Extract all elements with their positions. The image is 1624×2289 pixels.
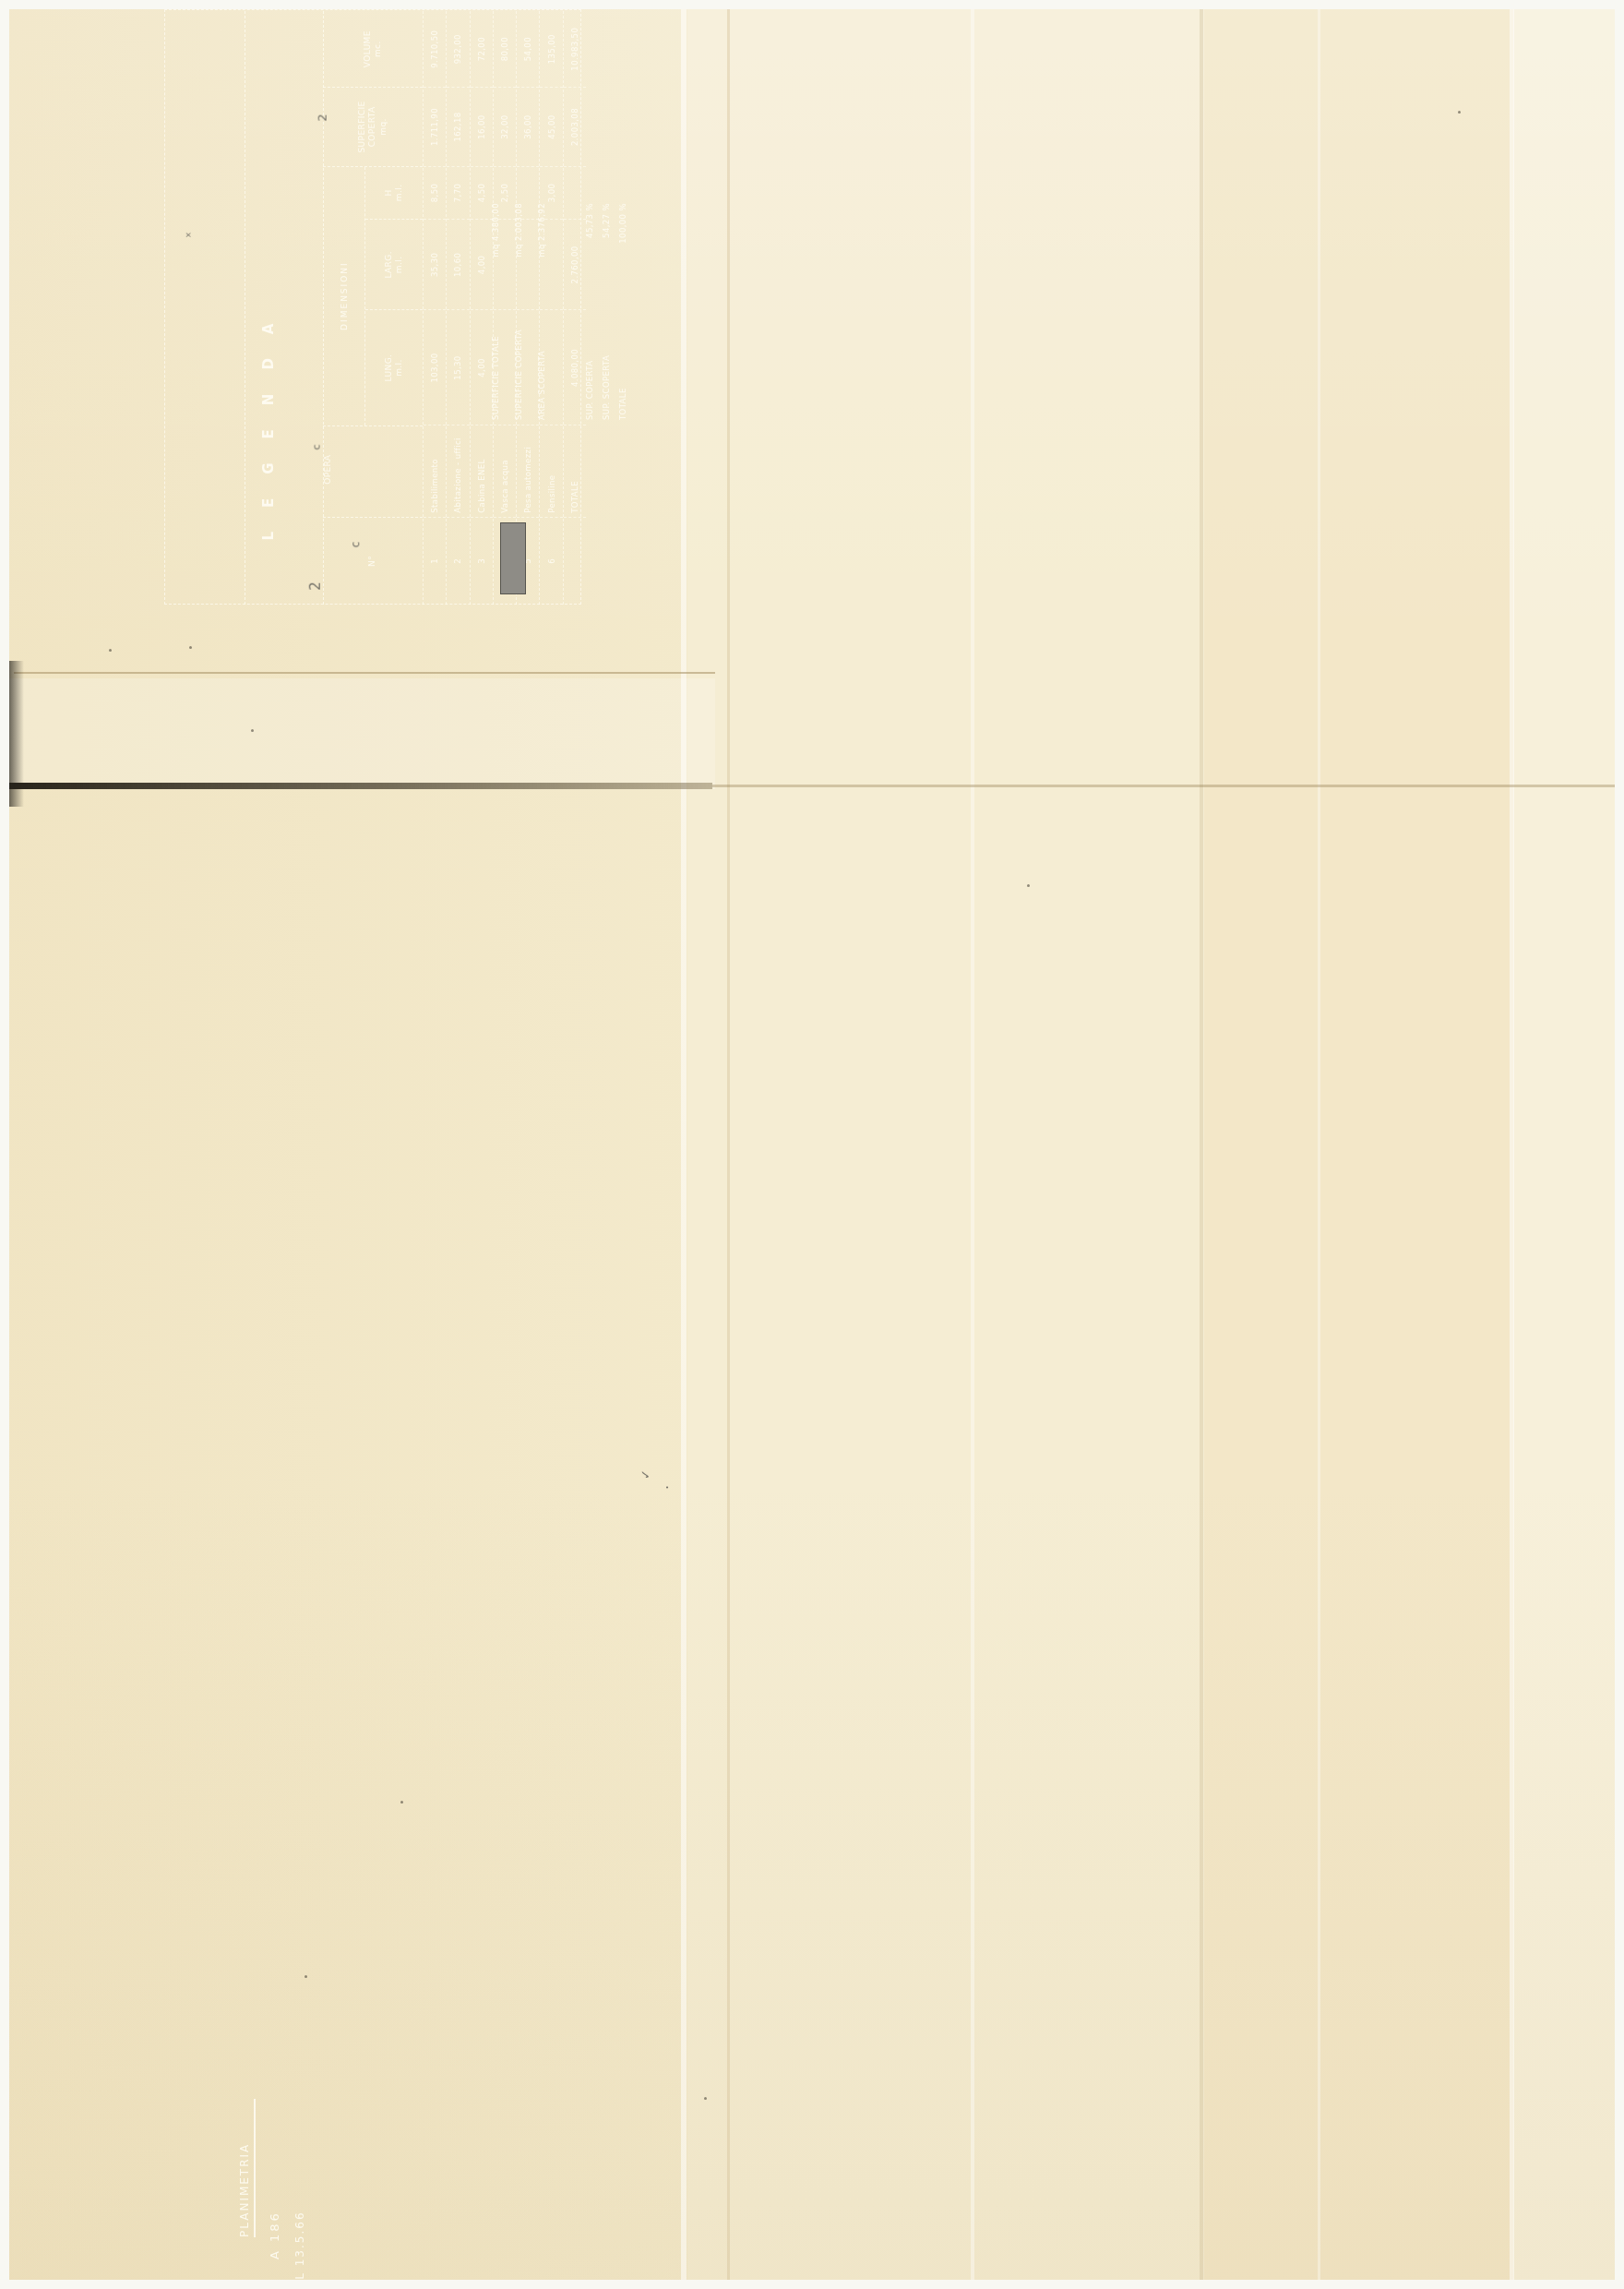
table-row: 1Stabilimento103,0035,308,501.711,909.71… xyxy=(423,11,446,605)
table-cell-larg: 35,30 xyxy=(424,220,446,310)
lung-label: LUNG. xyxy=(384,354,394,382)
table-cell-sup: 16,00 xyxy=(471,88,493,166)
percentage-note-value: 45,73 % xyxy=(585,203,594,238)
paper-speck xyxy=(228,4,231,6)
legend-fill-swatch xyxy=(500,522,526,594)
paper-speck xyxy=(1458,111,1461,114)
table-cell-vol: 80,00 xyxy=(494,11,516,88)
h-label: H xyxy=(384,189,394,196)
paper-speck xyxy=(189,646,192,649)
table-cell-vol: 135,00 xyxy=(540,11,562,88)
vertical-fold-crease xyxy=(727,0,730,2289)
summary-note: SUPERFICIE COPERTAmq 2.003,08 xyxy=(514,203,523,420)
table-cell-sup: 36,00 xyxy=(517,88,539,166)
table-cell-vol: 9.710,50 xyxy=(424,11,446,88)
pencil-annotation: c xyxy=(349,542,362,548)
summary-note: AREA SCOPERTAmq 2.376,92 xyxy=(537,203,546,420)
table-row: 2Abitazione - uffici15,3010,607,70162,18… xyxy=(446,11,469,605)
column-header-n-label: N° xyxy=(367,556,377,567)
table-cell-opera: TOTALE xyxy=(564,426,586,518)
fold-light-band xyxy=(0,678,715,789)
table-cell-vol: 932,00 xyxy=(447,11,469,88)
title-block-line1: PLANIMETRIA xyxy=(238,2099,256,2237)
table-cell-vol: 54,00 xyxy=(517,11,539,88)
percentage-note-value: 100,00 % xyxy=(618,203,627,244)
paper-speck xyxy=(109,649,112,652)
dimensioni-subcolumns: LUNG. m.l. LARG. m.l. H m.l. xyxy=(365,167,423,425)
vertical-fold-crease xyxy=(1510,0,1514,2289)
table-cell-sup: 162,18 xyxy=(447,88,469,166)
vertical-fold-crease xyxy=(1200,0,1203,2289)
paper-speck xyxy=(1027,884,1030,887)
paper-tone-middle xyxy=(687,0,1204,2289)
table-cell-opera: Cabina ENEL xyxy=(471,426,493,518)
table-cell-lung: 4.080,00 xyxy=(564,310,586,425)
table-cell-larg: 4,00 xyxy=(471,220,493,310)
percentage-note-value: 54,27 % xyxy=(602,203,611,238)
column-header-superficie: SUPERFICIE COPERTA mq. xyxy=(323,88,423,166)
table-cell-h: 4,50 xyxy=(471,167,493,221)
paper-speck xyxy=(304,1975,307,1978)
column-header-lung: LUNG. m.l. xyxy=(365,310,423,425)
horizontal-crease-shadow xyxy=(0,783,712,789)
legend-table-rows: 1Stabilimento103,0035,308,501.711,909.71… xyxy=(423,11,586,605)
table-row: 3Cabina ENEL4,004,004,5016,0072,00 xyxy=(470,11,493,605)
pencil-annotation: 2 xyxy=(316,114,329,121)
table-cell-vol: 72,00 xyxy=(471,11,493,88)
table-cell-n xyxy=(564,518,586,605)
paper-speck xyxy=(704,2097,707,2100)
column-header-opera-label: OPERA xyxy=(323,455,333,485)
column-header-volume: VOLUME mc. xyxy=(323,11,423,88)
column-header-larg: LARG. m.l. xyxy=(365,220,423,310)
volume-label: VOLUME xyxy=(363,30,373,67)
larg-label: LARG. xyxy=(384,251,394,278)
table-cell-n: 6 xyxy=(540,518,562,605)
title-block-line3: AL 13.5.66 xyxy=(293,2174,306,2289)
vertical-fold-crease xyxy=(681,0,687,2289)
volume-unit: mc. xyxy=(373,41,383,57)
column-header-h: H m.l. xyxy=(365,167,423,221)
pencil-annotation: ✓ xyxy=(639,1469,652,1480)
table-cell-opera: Pesa automezzi xyxy=(517,426,539,518)
larg-unit: m.l. xyxy=(394,257,404,274)
summary-note-value: mq 4.380,00 xyxy=(491,203,500,258)
pencil-annotation: · xyxy=(659,1485,676,1490)
summary-note-label: SUPERFICIE COPERTA xyxy=(514,330,523,420)
vertical-fold-crease xyxy=(1318,0,1320,2289)
table-cell-lung: 15,30 xyxy=(447,310,469,425)
horizontal-crease-shadow-right xyxy=(712,785,1624,787)
summary-note-label: SUPERFICIE TOTALE xyxy=(491,336,500,420)
table-cell-h xyxy=(564,167,586,221)
table-row: TOTALE4.080,002.760,002.003,0810.983,50 xyxy=(563,11,586,605)
pencil-annotation: c xyxy=(311,444,323,449)
lung-unit: m.l. xyxy=(394,359,404,377)
summary-note-value: mq 2.003,08 xyxy=(514,203,523,258)
percentage-note-label: TOTALE xyxy=(618,388,627,420)
column-group-dimensioni-label: DIMENSIONI xyxy=(323,167,365,425)
percentage-note-label: SUP. SCOPERTA xyxy=(602,355,611,420)
table-cell-lung: 103,00 xyxy=(424,310,446,425)
percentage-note: TOTALE100,00 % xyxy=(618,203,627,420)
table-cell-opera: Stabilimento xyxy=(424,426,446,518)
vertical-fold-crease xyxy=(971,0,974,2289)
scanned-drawing-sheet: LEGENDA N° OPERA DIMENSIONI LUNG. m.l. L… xyxy=(0,0,1624,2289)
legend-header-row: N° OPERA DIMENSIONI LUNG. m.l. LARG. m.l… xyxy=(323,11,423,605)
table-cell-sup: 45,00 xyxy=(540,88,562,166)
table-cell-larg: 10,60 xyxy=(447,220,469,310)
summary-note-value: mq 2.376,92 xyxy=(537,203,546,258)
pencil-annotation: × xyxy=(185,232,193,238)
table-cell-opera: Abitazione - uffici xyxy=(447,426,469,518)
table-cell-sup: 1.711,90 xyxy=(424,88,446,166)
summary-note: SUPERFICIE TOTALEmq 4.380,00 xyxy=(491,203,500,420)
superficie-label: SUPERFICIE COPERTA xyxy=(357,94,378,159)
percentage-note-label: SUP. COPERTA xyxy=(585,361,594,420)
table-cell-n: 1 xyxy=(424,518,446,605)
table-rule xyxy=(245,11,245,605)
paper-speck xyxy=(400,1801,403,1804)
percentage-note: SUP. COPERTA45,73 % xyxy=(585,203,594,420)
legend-table: LEGENDA N° OPERA DIMENSIONI LUNG. m.l. L… xyxy=(157,9,655,618)
paper-tone-right xyxy=(1204,0,1513,2289)
pencil-annotation: 2 xyxy=(307,581,324,591)
table-cell-sup: 2.003,08 xyxy=(564,88,586,166)
column-header-opera: OPERA xyxy=(323,426,423,518)
table-cell-opera: Vasca acqua xyxy=(494,426,516,518)
percentage-note: SUP. SCOPERTA54,27 % xyxy=(602,203,611,420)
table-cell-n: 2 xyxy=(447,518,469,605)
scan-shadow-wedge xyxy=(0,661,24,807)
table-cell-h: 8,50 xyxy=(424,167,446,221)
title-block-line2: A 186 xyxy=(268,2158,281,2259)
paper-tone-right-edge xyxy=(1513,0,1624,2289)
h-unit: m.l. xyxy=(394,185,404,202)
paper-speck xyxy=(251,729,254,732)
table-cell-h: 7,70 xyxy=(447,167,469,221)
superficie-unit: mq. xyxy=(378,118,388,136)
column-header-n: N° xyxy=(323,518,423,605)
table-cell-larg: 2.760,00 xyxy=(564,220,586,310)
summary-note-label: AREA SCOPERTA xyxy=(537,351,546,420)
horizontal-fold-crease xyxy=(14,672,715,674)
column-group-dimensioni: DIMENSIONI LUNG. m.l. LARG. m.l. H m.l. xyxy=(323,167,423,426)
table-cell-lung: 4,00 xyxy=(471,310,493,425)
table-cell-n: 3 xyxy=(471,518,493,605)
table-cell-opera: Pensiline xyxy=(540,426,562,518)
table-cell-vol: 10.983,50 xyxy=(564,11,586,88)
table-cell-sup: 32,00 xyxy=(494,88,516,166)
